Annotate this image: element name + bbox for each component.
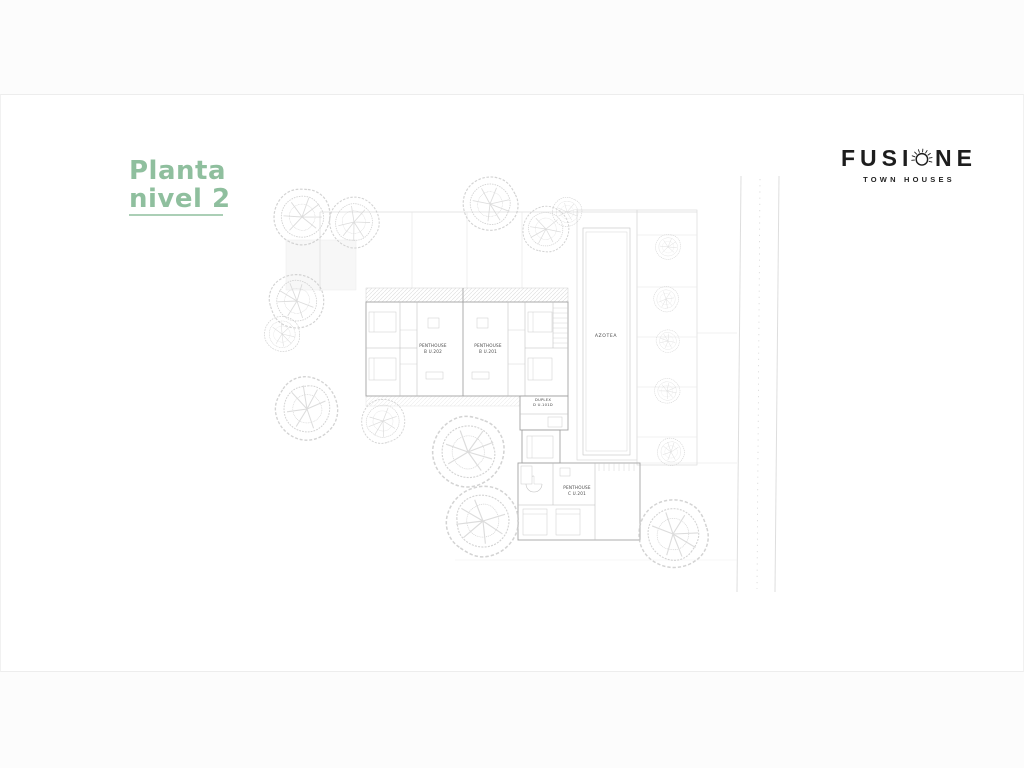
landscape-trees — [261, 168, 714, 575]
penthouse-b-block: PENTHOUSE B U.202 PENTHOUSE B U.201 — [366, 288, 568, 396]
tree-icon — [454, 168, 526, 240]
duplex-label-line2: D U.101D — [533, 402, 553, 407]
tree-icon — [632, 493, 714, 575]
bush-icon — [649, 373, 684, 408]
bush-icon — [653, 326, 683, 356]
road — [737, 176, 779, 592]
roof-band-top — [366, 288, 568, 302]
tree-icon — [262, 314, 302, 354]
stair-treads — [553, 308, 568, 343]
unit-b201-label-line1: PENTHOUSE — [474, 343, 502, 348]
tree-icon — [516, 199, 577, 260]
tree-icon — [261, 363, 352, 454]
azotea-area: AZOTEA — [577, 210, 637, 460]
tree-icon — [431, 470, 534, 573]
planter-column — [637, 210, 697, 465]
unit-c201-label-line2: C U.201 — [568, 491, 586, 496]
penthouse-c-block: PENTHOUSE C U.201 — [518, 430, 640, 540]
paving-patch — [286, 240, 356, 290]
tree-icon — [419, 402, 518, 501]
unit-b202-label-line1: PENTHOUSE — [419, 343, 447, 348]
duplex-area: DUPLEX D U.101D — [520, 396, 568, 430]
floor-plan: PENTHOUSE B U.202 PENTHOUSE B U.201 AZOT… — [0, 0, 1024, 768]
unit-b201-label-line2: B U.201 — [479, 349, 497, 354]
roof-band-bottom — [366, 396, 520, 406]
bush-icon — [648, 281, 684, 317]
azotea-label: AZOTEA — [595, 333, 618, 339]
site-boundaries — [286, 212, 737, 560]
terrace-steps — [599, 463, 634, 471]
unit-c201-label-line1: PENTHOUSE — [563, 485, 591, 490]
unit-b202-label-line2: B U.202 — [424, 349, 442, 354]
bush-icon — [652, 231, 684, 263]
